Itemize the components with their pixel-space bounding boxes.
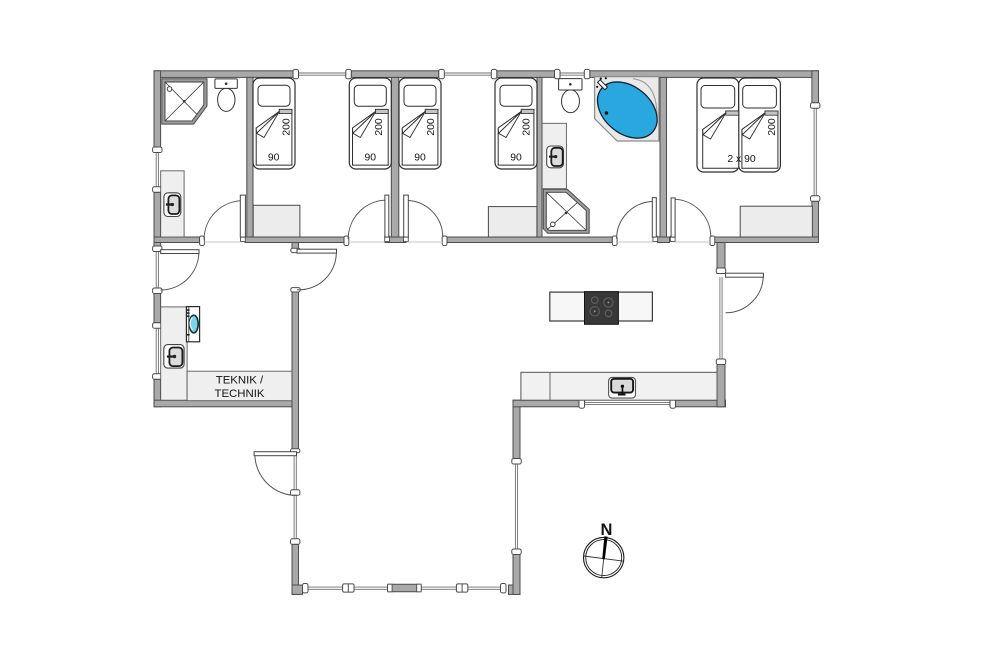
svg-text:200: 200	[521, 118, 532, 136]
svg-text:90: 90	[510, 153, 522, 164]
svg-text:90: 90	[365, 153, 377, 164]
svg-text:TEKNIK /: TEKNIK /	[216, 375, 264, 387]
svg-text:200: 200	[374, 118, 385, 136]
svg-text:2 x 90: 2 x 90	[727, 154, 756, 165]
svg-text:90: 90	[414, 153, 426, 164]
svg-text:200: 200	[426, 118, 437, 136]
svg-text:200: 200	[281, 118, 292, 136]
svg-text:N: N	[601, 521, 613, 539]
svg-text:200: 200	[767, 118, 778, 136]
svg-text:90: 90	[268, 153, 280, 164]
svg-text:TECHNIK: TECHNIK	[215, 388, 265, 400]
